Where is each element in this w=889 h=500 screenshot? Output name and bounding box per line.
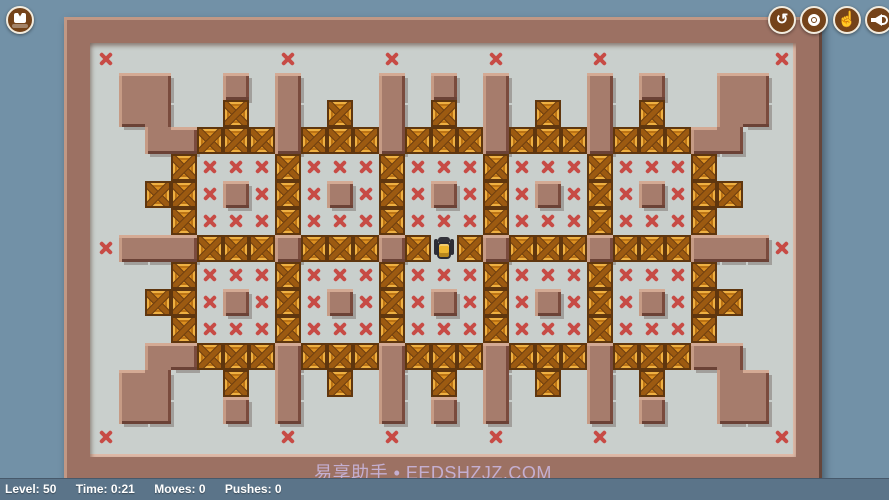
crate-tile[interactable] (171, 262, 197, 289)
goal-tile (379, 46, 405, 73)
crate-tile[interactable] (327, 370, 353, 397)
goal-tile (197, 208, 223, 235)
goal-tile (535, 208, 561, 235)
goal-tile (431, 154, 457, 181)
wall-tile (743, 397, 769, 424)
goal-tile (665, 262, 691, 289)
wall-tile (275, 100, 301, 127)
goal-tile (665, 181, 691, 208)
wall-tile (535, 181, 561, 208)
player-sprite-part (437, 242, 451, 259)
goal-tile (613, 316, 639, 343)
crate-tile[interactable] (379, 181, 405, 208)
goal-tile (665, 316, 691, 343)
crate-tile[interactable] (483, 181, 509, 208)
crate-tile[interactable] (691, 316, 717, 343)
goal-tile (561, 289, 587, 316)
wall-tile (717, 100, 743, 127)
goal-tile (353, 154, 379, 181)
crate-tile[interactable] (405, 127, 431, 154)
crate-tile[interactable] (691, 208, 717, 235)
levels-button[interactable] (6, 6, 34, 34)
crate-tile[interactable] (327, 235, 353, 262)
crate-tile[interactable] (145, 289, 171, 316)
crate-tile[interactable] (587, 316, 613, 343)
goal-tile (535, 316, 561, 343)
wall-tile (717, 73, 743, 100)
goal-tile (301, 181, 327, 208)
crate-tile[interactable] (223, 127, 249, 154)
wall-tile (431, 397, 457, 424)
crate-tile[interactable] (561, 343, 587, 370)
crate-tile[interactable] (483, 262, 509, 289)
board-floor (90, 43, 796, 457)
wall-tile (119, 397, 145, 424)
crate-tile[interactable] (665, 127, 691, 154)
goal-tile (327, 208, 353, 235)
crate-tile[interactable] (509, 235, 535, 262)
crate-tile[interactable] (665, 343, 691, 370)
crate-tile[interactable] (275, 154, 301, 181)
wall-tile (483, 397, 509, 424)
crate-tile[interactable] (587, 181, 613, 208)
game-screen: ↺ ☝ 易享助手 • EEDSHZJZ.COM Level: 50 Time: … (0, 0, 889, 500)
goal-tile (769, 235, 795, 262)
wall-tile (431, 289, 457, 316)
goal-tile (457, 181, 483, 208)
crate-tile[interactable] (327, 100, 353, 127)
status-bar: Level: 50 Time: 0:21 Moves: 0 Pushes: 0 (0, 478, 889, 500)
crate-tile[interactable] (509, 343, 535, 370)
crate-tile[interactable] (223, 235, 249, 262)
crate-tile[interactable] (483, 154, 509, 181)
goal-tile (327, 154, 353, 181)
goal-tile (249, 208, 275, 235)
wall-tile (145, 370, 171, 397)
goal-tile (665, 289, 691, 316)
goal-tile (509, 262, 535, 289)
wall-tile (223, 73, 249, 100)
crate-tile[interactable] (431, 370, 457, 397)
crate-tile[interactable] (223, 343, 249, 370)
wall-tile (171, 127, 197, 154)
goal-tile (223, 208, 249, 235)
goal-tile (639, 154, 665, 181)
goal-tile (249, 262, 275, 289)
crate-tile[interactable] (535, 235, 561, 262)
wall-tile (379, 127, 405, 154)
crate-tile[interactable] (587, 262, 613, 289)
crate-tile[interactable] (483, 208, 509, 235)
goal-tile (301, 262, 327, 289)
wall-tile (379, 343, 405, 370)
wall-tile (119, 235, 145, 262)
crate-tile[interactable] (301, 127, 327, 154)
goal-tile (561, 208, 587, 235)
crate-tile[interactable] (691, 289, 717, 316)
undo-icon: ↺ (770, 8, 794, 31)
levels-icon-band (12, 24, 28, 28)
hint-button[interactable]: ☝ (833, 6, 861, 34)
goal-tile (93, 46, 119, 73)
crate-tile[interactable] (431, 343, 457, 370)
goal-tile (93, 235, 119, 262)
goal-tile (561, 316, 587, 343)
wall-tile (743, 73, 769, 100)
wall-tile (145, 73, 171, 100)
goal-tile (483, 46, 509, 73)
goal-tile (665, 208, 691, 235)
goal-tile (613, 154, 639, 181)
goal-tile (509, 316, 535, 343)
wall-tile (275, 397, 301, 424)
goal-tile (197, 289, 223, 316)
crate-tile[interactable] (535, 127, 561, 154)
wall-tile (587, 235, 613, 262)
wall-tile (717, 235, 743, 262)
crate-tile[interactable] (353, 127, 379, 154)
wall-tile (587, 73, 613, 100)
speaker-icon (871, 14, 882, 26)
crate-tile[interactable] (665, 235, 691, 262)
goal-tile (223, 316, 249, 343)
goal-tile (613, 181, 639, 208)
wall-tile (275, 73, 301, 100)
crate-tile[interactable] (483, 316, 509, 343)
crate-tile[interactable] (613, 127, 639, 154)
crate-tile[interactable] (379, 154, 405, 181)
crate-tile[interactable] (405, 235, 431, 262)
goal-tile (405, 262, 431, 289)
crate-tile[interactable] (587, 154, 613, 181)
levels-icon (14, 13, 26, 23)
crate-tile[interactable] (171, 289, 197, 316)
crate-tile[interactable] (275, 181, 301, 208)
goal-tile (509, 181, 535, 208)
crate-tile[interactable] (275, 208, 301, 235)
crate-tile[interactable] (353, 235, 379, 262)
crate-tile[interactable] (691, 154, 717, 181)
goal-tile (353, 289, 379, 316)
crate-tile[interactable] (171, 316, 197, 343)
crate-tile[interactable] (301, 235, 327, 262)
crate-tile[interactable] (613, 235, 639, 262)
wall-tile (743, 235, 769, 262)
wall-tile (119, 73, 145, 100)
wall-tile (223, 289, 249, 316)
wall-tile (379, 370, 405, 397)
goal-tile (509, 208, 535, 235)
goal-tile (223, 154, 249, 181)
crate-tile[interactable] (405, 343, 431, 370)
wall-tile (119, 370, 145, 397)
crate-tile[interactable] (639, 343, 665, 370)
goal-tile (301, 289, 327, 316)
wall-tile (327, 289, 353, 316)
wall-tile (145, 100, 171, 127)
hand-pointer-icon: ☝ (835, 8, 859, 31)
crate-tile[interactable] (223, 100, 249, 127)
player[interactable] (431, 235, 457, 262)
goal-tile (197, 262, 223, 289)
goal-tile (561, 262, 587, 289)
wall-tile (275, 127, 301, 154)
level-status: Level: 50 (5, 482, 56, 496)
crate-tile[interactable] (535, 100, 561, 127)
goal-tile (301, 208, 327, 235)
wall-tile (119, 100, 145, 127)
wall-tile (717, 343, 743, 370)
crate-tile[interactable] (171, 181, 197, 208)
crate-tile[interactable] (223, 370, 249, 397)
goal-tile (639, 262, 665, 289)
goal-tile (613, 262, 639, 289)
wall-tile (483, 370, 509, 397)
goal-tile (431, 316, 457, 343)
crate-tile[interactable] (249, 343, 275, 370)
goal-tile (353, 262, 379, 289)
goal-tile (301, 316, 327, 343)
wall-tile (171, 235, 197, 262)
goal-tile (639, 316, 665, 343)
sound-button[interactable] (865, 6, 889, 34)
crate-tile[interactable] (457, 235, 483, 262)
crate-tile[interactable] (561, 235, 587, 262)
pushes-status: Pushes: 0 (225, 482, 282, 496)
crate-tile[interactable] (639, 127, 665, 154)
goal-tile (613, 208, 639, 235)
wall-tile (379, 100, 405, 127)
goal-tile (275, 424, 301, 451)
goal-tile (197, 181, 223, 208)
crate-tile[interactable] (639, 235, 665, 262)
goal-tile (197, 316, 223, 343)
crate-tile[interactable] (379, 289, 405, 316)
goal-tile (509, 154, 535, 181)
wall-tile (145, 235, 171, 262)
wall-tile (223, 397, 249, 424)
crate-tile[interactable] (587, 208, 613, 235)
goal-tile (457, 262, 483, 289)
goal-tile (327, 316, 353, 343)
goal-tile (379, 424, 405, 451)
crate-tile[interactable] (197, 235, 223, 262)
crate-tile[interactable] (197, 343, 223, 370)
wall-tile (379, 397, 405, 424)
crate-tile[interactable] (509, 127, 535, 154)
wall-tile (483, 127, 509, 154)
wall-tile (275, 343, 301, 370)
goal-tile (353, 181, 379, 208)
goal-tile (457, 316, 483, 343)
goal-tile (405, 181, 431, 208)
goal-tile (561, 154, 587, 181)
wall-tile (639, 181, 665, 208)
goal-tile (587, 46, 613, 73)
wall-tile (275, 235, 301, 262)
wall-tile (587, 370, 613, 397)
goal-tile (405, 154, 431, 181)
wall-tile (145, 127, 171, 154)
crate-tile[interactable] (717, 289, 743, 316)
wall-tile (379, 73, 405, 100)
crate-tile[interactable] (535, 343, 561, 370)
restart-button[interactable] (800, 6, 828, 34)
wall-tile (275, 370, 301, 397)
moves-status: Moves: 0 (154, 482, 205, 496)
crate-tile[interactable] (327, 343, 353, 370)
wall-tile (379, 235, 405, 262)
crate-tile[interactable] (145, 181, 171, 208)
wall-tile (327, 181, 353, 208)
crate-tile[interactable] (353, 343, 379, 370)
wall-tile (743, 100, 769, 127)
wall-tile (587, 100, 613, 127)
crate-tile[interactable] (613, 343, 639, 370)
game-board (64, 17, 822, 483)
crate-tile[interactable] (327, 127, 353, 154)
crate-tile[interactable] (379, 208, 405, 235)
crate-tile[interactable] (717, 181, 743, 208)
wall-tile (717, 397, 743, 424)
crate-tile[interactable] (431, 127, 457, 154)
goal-tile (301, 154, 327, 181)
crate-tile[interactable] (275, 316, 301, 343)
wall-tile (483, 235, 509, 262)
wall-tile (639, 289, 665, 316)
crate-tile[interactable] (691, 181, 717, 208)
goal-tile (639, 208, 665, 235)
crate-tile[interactable] (197, 127, 223, 154)
goal-tile (197, 154, 223, 181)
goal-tile (561, 181, 587, 208)
wall-tile (431, 181, 457, 208)
wall-tile (535, 289, 561, 316)
wall-tile (691, 343, 717, 370)
crate-tile[interactable] (171, 154, 197, 181)
goal-tile (223, 262, 249, 289)
wall-tile (717, 127, 743, 154)
crate-tile[interactable] (457, 127, 483, 154)
crate-tile[interactable] (639, 370, 665, 397)
restart-icon-dot (812, 18, 816, 22)
wall-tile (145, 397, 171, 424)
goal-tile (327, 262, 353, 289)
wall-tile (587, 343, 613, 370)
goal-tile (509, 289, 535, 316)
goal-tile (249, 316, 275, 343)
crate-tile[interactable] (639, 100, 665, 127)
wall-tile (483, 100, 509, 127)
speaker-wave-icon (882, 15, 888, 25)
goal-tile (665, 154, 691, 181)
wall-tile (223, 181, 249, 208)
goal-tile (249, 181, 275, 208)
crate-tile[interactable] (275, 289, 301, 316)
goal-tile (457, 208, 483, 235)
goal-tile (457, 154, 483, 181)
goal-tile (535, 262, 561, 289)
goal-tile (249, 289, 275, 316)
crate-tile[interactable] (249, 235, 275, 262)
crate-tile[interactable] (457, 343, 483, 370)
goal-tile (483, 424, 509, 451)
goal-tile (431, 208, 457, 235)
time-status: Time: 0:21 (76, 482, 135, 496)
crate-tile[interactable] (301, 343, 327, 370)
goal-tile (587, 424, 613, 451)
crate-tile[interactable] (431, 100, 457, 127)
goal-tile (457, 289, 483, 316)
goal-tile (431, 262, 457, 289)
wall-tile (145, 343, 171, 370)
wall-tile (431, 73, 457, 100)
goal-tile (405, 208, 431, 235)
crate-tile[interactable] (561, 127, 587, 154)
wall-tile (691, 235, 717, 262)
crate-tile[interactable] (171, 208, 197, 235)
wall-tile (171, 343, 197, 370)
goal-tile (93, 424, 119, 451)
goal-tile (769, 424, 795, 451)
crate-tile[interactable] (249, 127, 275, 154)
goal-tile (613, 289, 639, 316)
wall-tile (483, 73, 509, 100)
wall-tile (639, 73, 665, 100)
goal-tile (405, 289, 431, 316)
wall-tile (587, 397, 613, 424)
goal-tile (249, 154, 275, 181)
crate-tile[interactable] (379, 262, 405, 289)
wall-tile (639, 397, 665, 424)
wall-tile (743, 370, 769, 397)
undo-button[interactable]: ↺ (768, 6, 796, 34)
tile-grid (93, 46, 795, 451)
goal-tile (535, 154, 561, 181)
crate-tile[interactable] (691, 262, 717, 289)
goal-tile (353, 316, 379, 343)
crate-tile[interactable] (535, 370, 561, 397)
wall-tile (587, 127, 613, 154)
wall-tile (691, 127, 717, 154)
crate-tile[interactable] (587, 289, 613, 316)
goal-tile (353, 208, 379, 235)
goal-tile (769, 46, 795, 73)
goal-tile (275, 46, 301, 73)
crate-tile[interactable] (483, 289, 509, 316)
goal-tile (405, 316, 431, 343)
crate-tile[interactable] (275, 262, 301, 289)
wall-tile (483, 343, 509, 370)
crate-tile[interactable] (379, 316, 405, 343)
wall-tile (717, 370, 743, 397)
